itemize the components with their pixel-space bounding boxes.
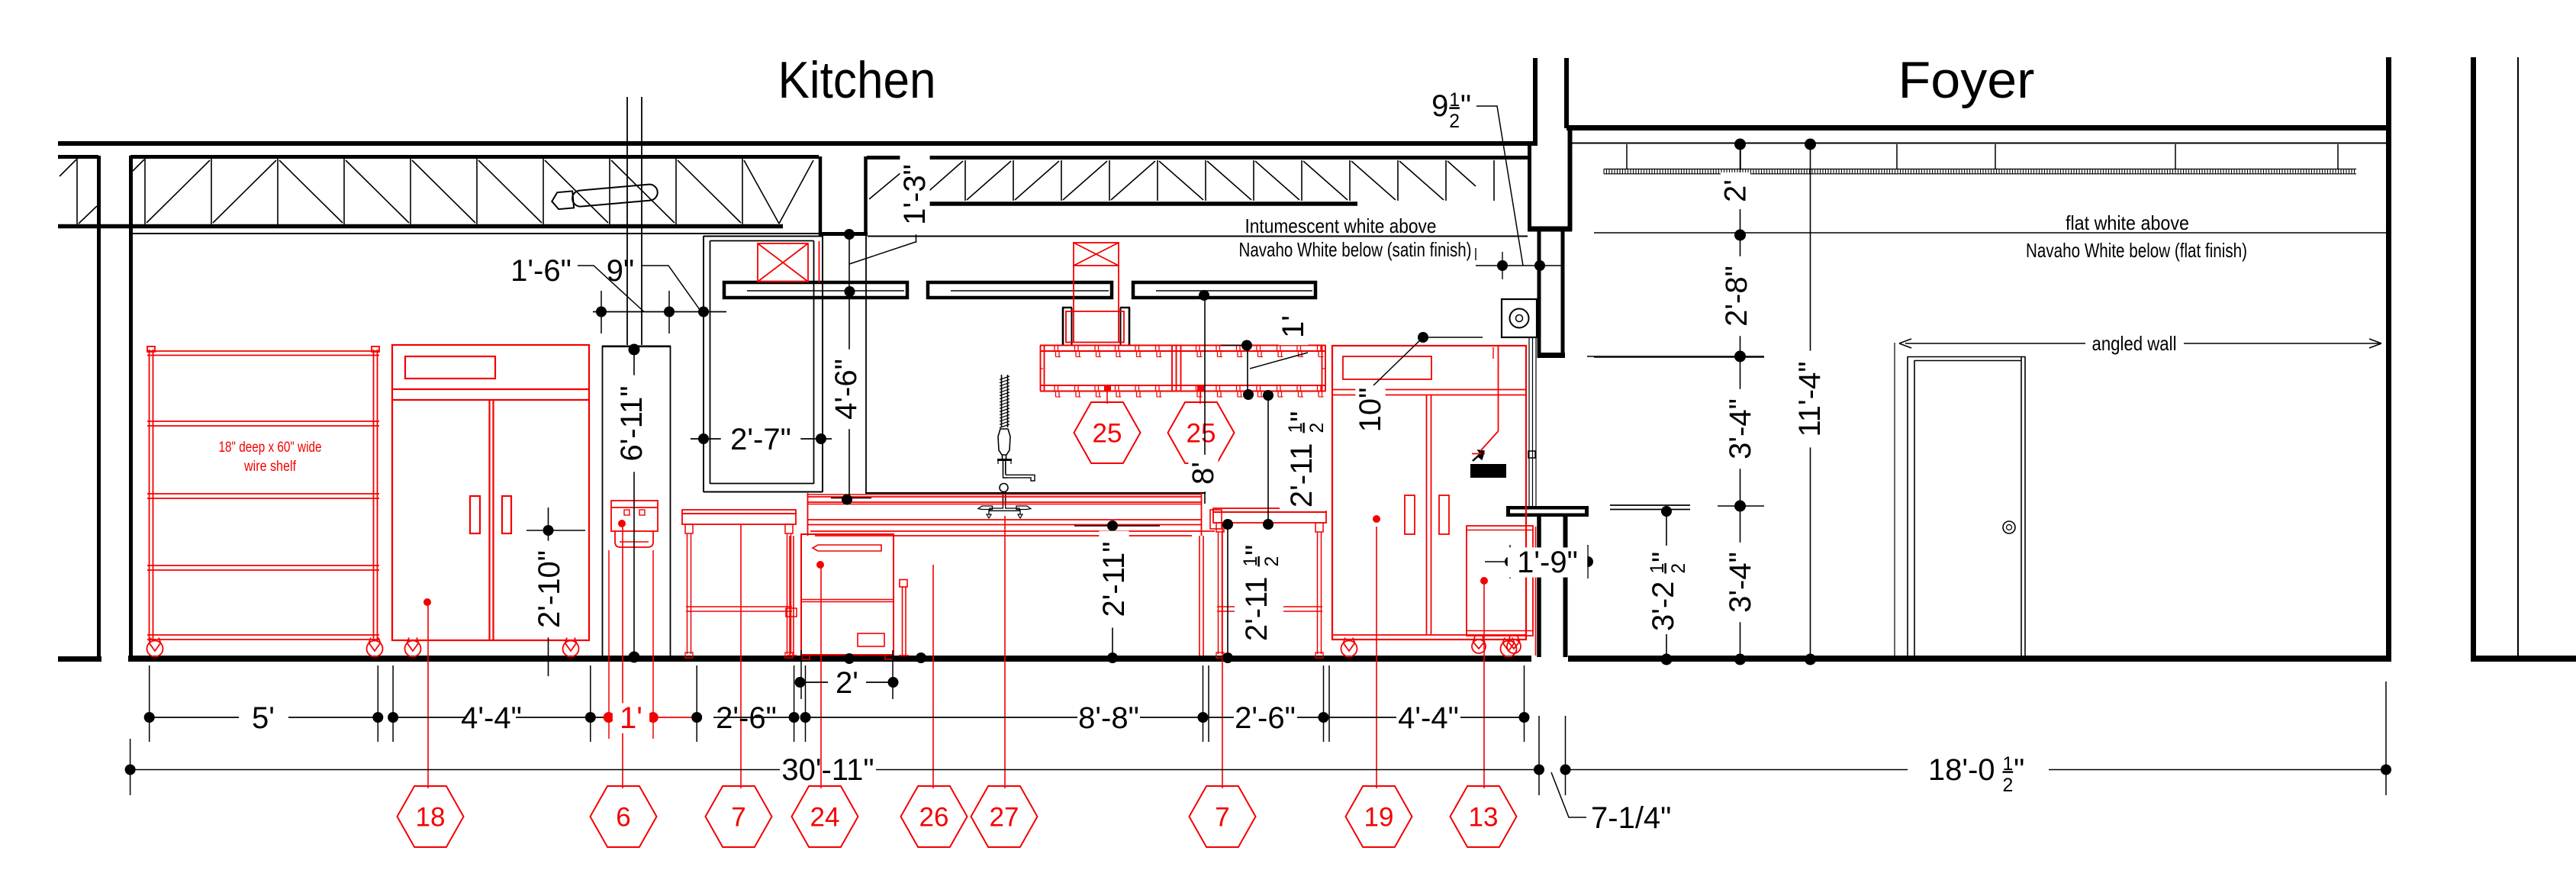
svg-text:2: 2 (1307, 423, 1328, 433)
svg-text:4'-6": 4'-6" (829, 359, 863, 420)
svg-text:30'-11": 30'-11" (781, 753, 874, 787)
svg-text:8'-8": 8'-8" (1078, 701, 1139, 735)
svg-text:": " (1240, 545, 1274, 556)
svg-text:6'-11": 6'-11" (615, 386, 649, 462)
svg-text:": " (1285, 411, 1319, 422)
svg-text:27: 27 (990, 802, 1019, 832)
svg-text:10": 10" (1354, 388, 1387, 433)
svg-text:2': 2' (836, 666, 858, 700)
svg-text:1'-3": 1'-3" (898, 164, 932, 225)
svg-text:Kitchen: Kitchen (778, 51, 936, 109)
svg-text:25: 25 (1187, 418, 1216, 448)
svg-text:3'-2: 3'-2 (1647, 582, 1680, 631)
svg-text:2: 2 (1449, 111, 1460, 132)
svg-text:9: 9 (1431, 89, 1448, 123)
svg-text:3'-4": 3'-4" (1724, 552, 1757, 613)
svg-text:Navaho White below (satin fini: Navaho White below (satin finish) (1239, 238, 1472, 261)
svg-text:1': 1' (620, 701, 642, 735)
svg-text:2'-11: 2'-11 (1285, 443, 1319, 507)
svg-text:": " (1647, 552, 1680, 562)
svg-text:2'-6": 2'-6" (1235, 701, 1296, 735)
svg-text:angled wall: angled wall (2092, 332, 2177, 355)
svg-text:7: 7 (1215, 802, 1229, 832)
svg-text:8': 8' (1187, 462, 1220, 485)
svg-text:2'-7": 2'-7" (730, 423, 791, 456)
svg-text:24: 24 (810, 802, 840, 832)
svg-text:18: 18 (416, 802, 446, 832)
svg-text:26: 26 (919, 802, 949, 832)
svg-text:13: 13 (1469, 802, 1499, 832)
svg-text:3'-4": 3'-4" (1724, 398, 1757, 459)
svg-text:2: 2 (1669, 563, 1689, 574)
svg-text:18'-0: 18'-0 (1928, 753, 1995, 787)
svg-text:Navaho White below (flat finis: Navaho White below (flat finish) (2026, 239, 2247, 262)
svg-text:7-1/4": 7-1/4" (1591, 801, 1671, 835)
svg-text:25: 25 (1093, 418, 1122, 448)
svg-text:4'-4": 4'-4" (1398, 701, 1459, 735)
svg-text:flat white above: flat white above (2066, 211, 2189, 234)
svg-text:1': 1' (1277, 315, 1310, 338)
svg-text:1'-9": 1'-9" (1517, 546, 1578, 579)
svg-text:11'-4": 11'-4" (1793, 362, 1827, 437)
svg-text:19: 19 (1364, 802, 1394, 832)
svg-text:7: 7 (731, 802, 745, 832)
svg-text:2'-10": 2'-10" (533, 550, 566, 628)
svg-text:9": 9" (607, 254, 634, 288)
svg-text:2'-6": 2'-6" (716, 701, 777, 735)
svg-text:wire shelf: wire shelf (243, 459, 296, 475)
svg-text:18" deep x 60" wide: 18" deep x 60" wide (219, 440, 322, 456)
svg-text:2': 2' (1719, 179, 1753, 202)
svg-text:2: 2 (1262, 556, 1283, 567)
svg-text:Intumescent white above: Intumescent white above (1245, 214, 1437, 237)
svg-text:2'-11": 2'-11" (1097, 542, 1131, 617)
svg-text:": " (1460, 89, 1471, 123)
svg-text:1'-6": 1'-6" (510, 254, 572, 288)
svg-text:Foyer: Foyer (1898, 51, 2035, 109)
svg-text:2'-8": 2'-8" (1720, 266, 1753, 327)
svg-text:5': 5' (252, 701, 275, 735)
svg-text:6: 6 (616, 802, 630, 832)
svg-text:4'-4": 4'-4" (461, 701, 522, 735)
svg-text:2'-11: 2'-11 (1240, 576, 1274, 641)
svg-text:": " (2014, 753, 2024, 787)
svg-text:2: 2 (2002, 775, 2013, 796)
